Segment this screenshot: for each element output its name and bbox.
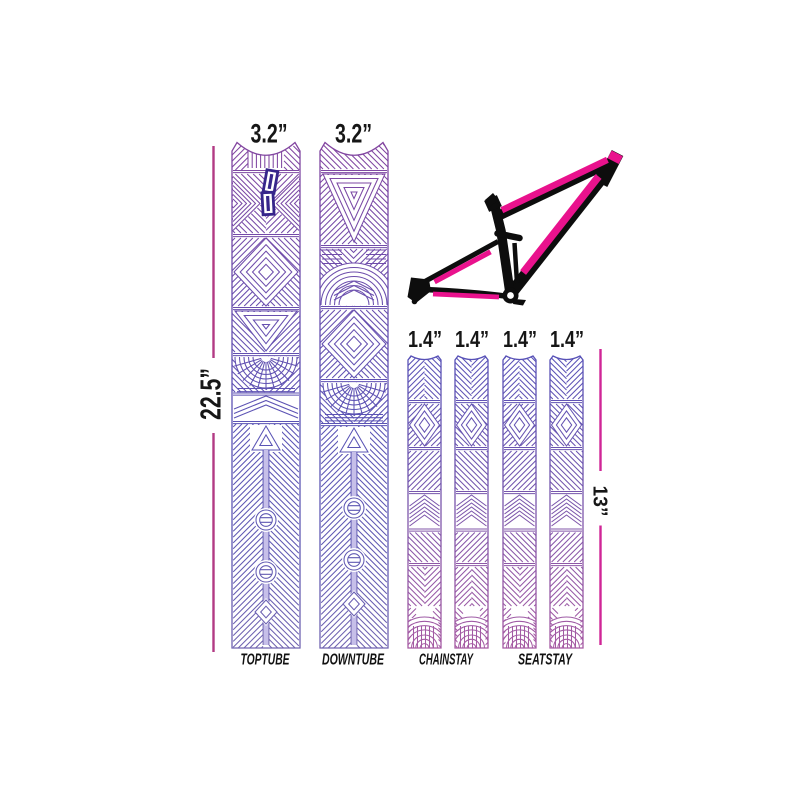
svg-text:1.4”: 1.4” xyxy=(503,326,537,352)
svg-text:1.4”: 1.4” xyxy=(550,326,584,352)
svg-text:3.2”: 3.2” xyxy=(335,119,372,149)
svg-text:1.4”: 1.4” xyxy=(455,326,489,352)
svg-text:TOPTUBE: TOPTUBE xyxy=(241,652,290,669)
svg-text:SEATSTAY: SEATSTAY xyxy=(518,652,573,669)
svg-text:CHAINSTAY: CHAINSTAY xyxy=(419,652,474,669)
svg-text:13”: 13” xyxy=(589,486,611,517)
svg-text:1.4”: 1.4” xyxy=(408,326,442,352)
svg-text:3.2”: 3.2” xyxy=(251,119,288,149)
svg-text:DOWNTUBE: DOWNTUBE xyxy=(322,652,384,669)
svg-text:22.5”: 22.5” xyxy=(196,368,228,420)
